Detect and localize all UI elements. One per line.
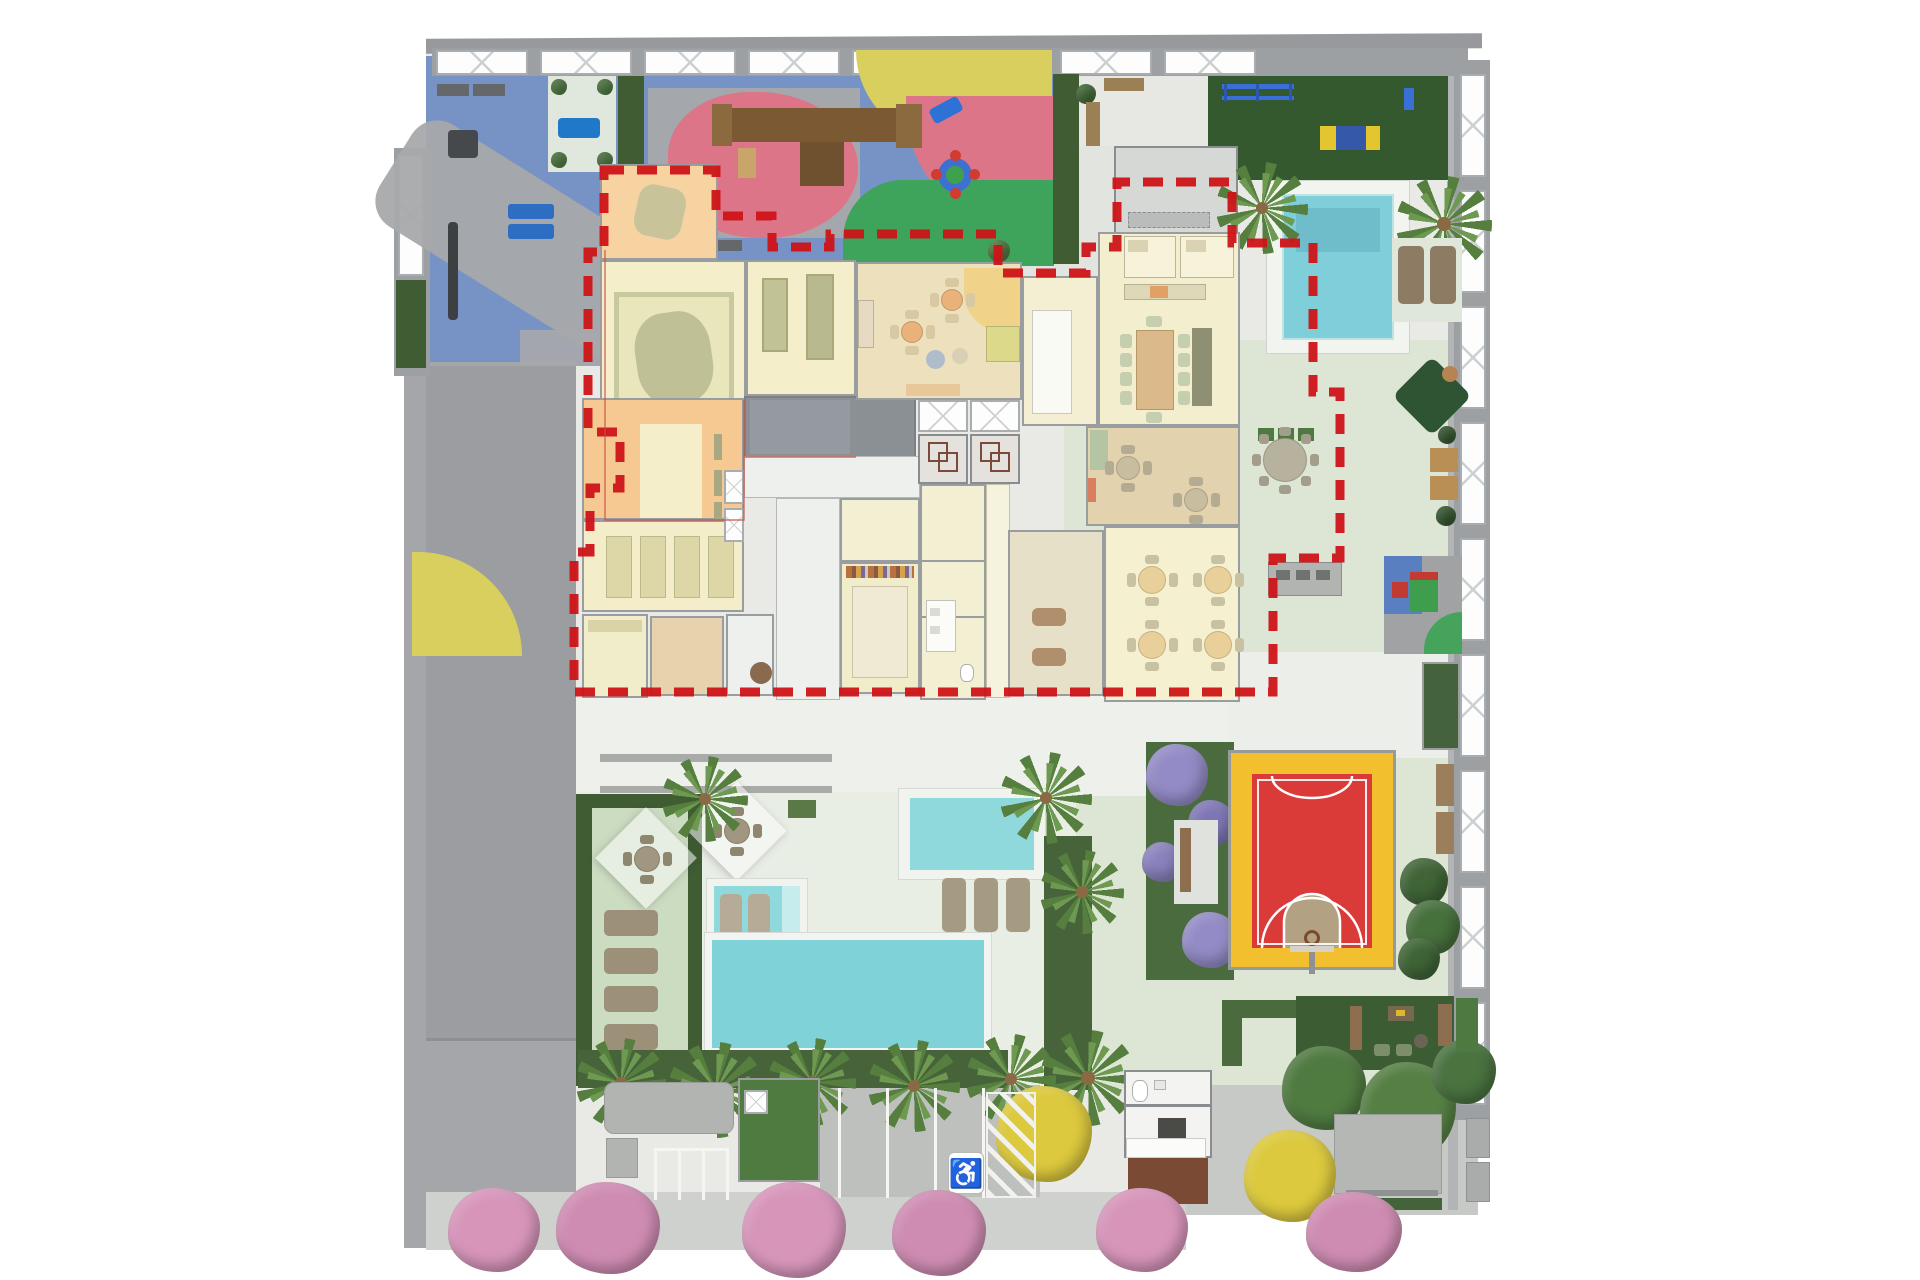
lounge-table-chair — [1189, 515, 1203, 524]
nook-vase — [1414, 1034, 1428, 1048]
nook-chair — [1396, 1044, 1412, 1056]
banquet-table-chair — [1211, 555, 1225, 564]
dining-chair — [1146, 316, 1162, 327]
beanbag — [952, 348, 968, 364]
facade-x-panel-top — [644, 50, 736, 75]
court-side-hedge — [1398, 938, 1440, 980]
garden-planter-x — [744, 1090, 768, 1114]
dining-chair — [1120, 372, 1132, 386]
outdoor-dining-table-chair — [1252, 454, 1261, 466]
facade-x-panel-top — [540, 50, 632, 75]
stair-treads — [750, 400, 850, 454]
elevator-cab — [918, 400, 968, 432]
buffet-sideboard — [1192, 328, 1212, 406]
dining-chair — [1178, 372, 1190, 386]
banquet-table — [1138, 566, 1166, 594]
garden-lounger — [604, 986, 658, 1012]
spa-lounger — [1032, 648, 1066, 666]
elevator-symbol — [938, 452, 958, 472]
play-structure-arm — [800, 142, 844, 186]
utility-pad — [604, 1082, 734, 1134]
outdoor-dining-table-chair — [1279, 427, 1291, 436]
lounge-table — [1184, 488, 1208, 512]
counter-sink — [1276, 570, 1290, 580]
spinner-center — [946, 166, 964, 184]
bookshelf — [846, 566, 914, 578]
banquet-table-chair — [1193, 573, 1202, 587]
moto-parking-line — [654, 1148, 657, 1200]
moto-parking-line — [726, 1148, 729, 1200]
left-hedge — [396, 280, 426, 368]
playroom-table-chair — [945, 278, 959, 287]
garden-table-chair — [730, 847, 744, 856]
locker-bank — [588, 620, 642, 632]
basketball-rim — [1304, 930, 1320, 946]
lobby-corridor — [776, 498, 840, 700]
lounge-table-chair — [1173, 493, 1182, 507]
bougainvillea — [742, 1182, 846, 1278]
playroom-table-chair — [905, 310, 919, 319]
sun-lounger — [1430, 246, 1456, 304]
banquet-table-chair — [1211, 662, 1225, 671]
jacaranda-tree — [1146, 744, 1208, 806]
parking-line — [934, 1088, 937, 1198]
wc-basin — [930, 626, 940, 634]
parking-line — [838, 1088, 841, 1198]
nook-bench — [1438, 1004, 1452, 1046]
lounge-sofa — [1186, 240, 1206, 252]
nook-table-accent — [1396, 1010, 1405, 1016]
walk-shrub — [1076, 84, 1096, 104]
outdoor-dining-table-chair — [1310, 454, 1319, 466]
banquet-table-chair — [1169, 573, 1178, 587]
side-table — [1442, 366, 1458, 382]
nook-bench — [1350, 1006, 1362, 1050]
spa-pool-step — [1296, 208, 1380, 252]
dining-chair — [1120, 334, 1132, 348]
garden-lounger — [604, 910, 658, 936]
banquet-table-chair — [1145, 597, 1159, 606]
moto-parking-top — [654, 1148, 729, 1151]
outdoor-dining-table-chair — [1301, 434, 1311, 444]
facade-x-panel-right — [1460, 422, 1486, 525]
nook-planter — [1456, 998, 1478, 1052]
dining-chair — [1146, 412, 1162, 423]
lounge-sofa — [1128, 240, 1148, 252]
lounge-table — [1116, 456, 1140, 480]
pilates-mat — [606, 536, 632, 598]
sun-lounger — [942, 878, 966, 932]
wood-crate — [1430, 476, 1458, 500]
banquet-table-chair — [1211, 620, 1225, 629]
garden-table-chair — [640, 835, 654, 844]
banquet-table-chair — [1211, 597, 1225, 606]
shrub — [988, 240, 1010, 262]
court-bench — [1436, 764, 1454, 806]
planter-box — [788, 800, 816, 818]
pass-counter-tray — [1150, 286, 1168, 298]
banquet-table — [1204, 566, 1232, 594]
treadmill-icon — [762, 278, 788, 352]
facade-x-panel-right — [1460, 770, 1486, 873]
driveway-joint — [426, 1038, 576, 1041]
pullup-post — [1289, 84, 1292, 101]
spinner-petal — [950, 150, 961, 161]
palm-tree — [1040, 850, 1124, 934]
walk-bench — [1104, 78, 1144, 91]
shrub — [1438, 426, 1456, 444]
toilet-icon — [960, 664, 974, 682]
facade-x-panel-top — [1164, 50, 1256, 75]
dining-chair — [1120, 353, 1132, 367]
patio-shrub — [551, 152, 567, 168]
dining-chair — [1178, 334, 1190, 348]
banquet-table-chair — [1193, 638, 1202, 652]
fireplace-lounge — [1086, 426, 1240, 526]
spinner-petal — [969, 169, 980, 180]
park-bench — [473, 84, 505, 96]
dumbbell-icon — [714, 470, 722, 496]
facade-x-panel-right — [1460, 538, 1486, 641]
facade-x-panel-right — [1460, 654, 1486, 757]
pullup-post — [1224, 84, 1227, 101]
fitness-bar — [448, 222, 458, 320]
main-pool-water — [712, 940, 984, 1048]
patio-shrub — [597, 79, 613, 95]
sun-lounger — [974, 878, 998, 932]
lounge-table-chair — [1143, 461, 1152, 475]
outdoor-dining-table — [1263, 438, 1307, 482]
gym-mat-blue — [1336, 126, 1366, 150]
counter-sink — [1296, 570, 1310, 580]
outdoor-dining-table-chair — [1259, 434, 1269, 444]
nook-chair — [1374, 1044, 1390, 1056]
outdoor-dining-table-chair — [1279, 485, 1291, 494]
beanbag — [926, 350, 945, 369]
elevator-symbol — [990, 452, 1010, 472]
service-rooms — [920, 484, 986, 700]
gym-mat-yellow — [1320, 126, 1336, 150]
playroom-table-chair — [890, 325, 899, 339]
reception-desk — [1128, 212, 1210, 228]
dining-chair — [1178, 353, 1190, 367]
park-bench — [437, 84, 469, 96]
garden-table-chair — [640, 875, 654, 884]
dining-chair — [1178, 391, 1190, 405]
banquet-table-chair — [1145, 620, 1159, 629]
sauna-room — [650, 616, 724, 696]
playroom-bench — [906, 384, 960, 396]
banquet-table-chair — [1127, 638, 1136, 652]
pool-wc-divider — [1124, 1104, 1212, 1107]
picnic-table-blue — [558, 118, 600, 138]
moto-parking-line — [678, 1148, 681, 1200]
playroom-table-chair — [905, 346, 919, 355]
banquet-room — [1104, 526, 1240, 702]
court-side-hedge — [1400, 858, 1448, 906]
palm-tree — [662, 756, 748, 842]
court-bench — [1436, 812, 1454, 854]
facade-x-panel-right — [1460, 886, 1486, 989]
wc-basin — [930, 608, 940, 616]
playroom-table-chair — [966, 293, 975, 307]
pilates-mat — [708, 536, 734, 598]
outdoor-dining-table-chair — [1259, 476, 1269, 486]
duct-shaft — [724, 508, 744, 542]
garden-bench — [1180, 828, 1191, 892]
lounge-table-chair — [1189, 477, 1203, 486]
ball-pit — [986, 326, 1020, 362]
parking-hatch-zone — [986, 1092, 1036, 1198]
pilates-mat — [640, 536, 666, 598]
pool-steps — [782, 886, 800, 938]
weight-rack-icon — [806, 274, 834, 360]
play-block-green — [1410, 580, 1438, 612]
banquet-table-chair — [1145, 555, 1159, 564]
exercise-mat-blue — [508, 224, 554, 239]
banquet-table-chair — [1169, 638, 1178, 652]
playroom-table-chair — [945, 314, 959, 323]
accessible-parking-badge: ♿ — [948, 1152, 984, 1194]
dumbbell-icon — [714, 434, 722, 460]
plaza-pad — [1334, 1114, 1442, 1194]
service-corridor — [986, 484, 1010, 698]
bougainvillea — [1096, 1188, 1188, 1272]
walk-bench — [1086, 102, 1100, 146]
dining-long-table — [1136, 330, 1174, 410]
games-table — [1032, 310, 1072, 414]
toilet-icon — [1132, 1080, 1148, 1102]
pantry-room — [840, 498, 920, 562]
playroom-table-chair — [930, 293, 939, 307]
banquet-table — [1204, 631, 1232, 659]
outdoor-dining-table-chair — [1301, 476, 1311, 486]
playroom-kitchenette — [858, 300, 874, 348]
shrub — [1436, 506, 1456, 526]
facade-x-panel-top — [436, 50, 528, 75]
spa-side-table — [750, 662, 772, 684]
play-block-red — [1392, 582, 1408, 598]
banquet-table-chair — [1235, 573, 1244, 587]
fitness-mat — [448, 130, 478, 158]
bougainvillea — [448, 1188, 540, 1272]
basketball-pole — [1309, 952, 1315, 974]
pullup-post — [1256, 84, 1259, 101]
wood-crate — [1430, 448, 1458, 472]
lawn-equipment — [1404, 88, 1414, 110]
se-garden-hedge — [1222, 1000, 1242, 1066]
banquet-table-chair — [1145, 662, 1159, 671]
service-divider — [920, 560, 986, 562]
garden-table — [634, 846, 660, 872]
moto-parking-line — [702, 1148, 705, 1200]
walk-hedge-strip — [1053, 74, 1079, 264]
sun-lounger — [1398, 246, 1424, 304]
palm-tree — [868, 1040, 960, 1132]
patio-hedge — [618, 76, 644, 172]
site-floor-plan: ♿ — [0, 0, 1920, 1280]
banquet-table-chair — [1235, 638, 1244, 652]
wc-canopy — [1126, 1138, 1206, 1158]
garden-table-chair — [753, 824, 762, 838]
exercise-mat-blue — [508, 204, 554, 219]
patio-shrub — [551, 79, 567, 95]
spa-lounger — [1032, 608, 1066, 626]
garden-lounger — [604, 948, 658, 974]
reading-table — [852, 586, 908, 678]
spinner-petal — [950, 188, 961, 199]
play-structure-ladder — [738, 148, 756, 178]
stretch-mat-striped — [640, 424, 702, 518]
court-planter — [1422, 662, 1460, 750]
shower-room — [726, 614, 774, 696]
utility-pad — [606, 1138, 638, 1178]
banquet-table-chair — [1127, 573, 1136, 587]
playroom-table — [901, 321, 923, 343]
playroom-table — [941, 289, 963, 311]
gym-mat-yellow — [1366, 126, 1380, 150]
garden-table-chair — [663, 852, 672, 866]
lounge-table-chair — [1121, 483, 1135, 492]
edge-planter — [1466, 1118, 1490, 1158]
play-structure-end — [896, 104, 922, 148]
facade-x-panel-top — [1060, 50, 1152, 75]
pilates-mat — [674, 536, 700, 598]
lounge-table-chair — [1211, 493, 1220, 507]
bougainvillea — [556, 1182, 660, 1274]
duct-shaft — [724, 470, 744, 504]
play-structure-end — [712, 104, 732, 146]
lounge-table-chair — [1121, 445, 1135, 454]
spinner-petal — [931, 169, 942, 180]
bougainvillea — [892, 1190, 986, 1276]
sun-lounger — [1006, 878, 1030, 932]
play-structure-beam — [726, 108, 912, 142]
garden-table-chair — [623, 852, 632, 866]
driveway-dark — [426, 366, 576, 1038]
lobby-upper — [744, 456, 920, 498]
play-block-green-top — [1410, 572, 1438, 580]
palm-tree — [1000, 752, 1092, 844]
counter-sink — [1316, 570, 1330, 580]
lounge-table-chair — [1105, 461, 1114, 475]
wc-desk — [1158, 1118, 1186, 1138]
facade-x-panel-top — [748, 50, 840, 75]
dining-chair — [1120, 391, 1132, 405]
banquet-table — [1138, 631, 1166, 659]
playground-green-patch — [843, 180, 1054, 266]
sink-icon — [1154, 1080, 1166, 1090]
bougainvillea — [1306, 1192, 1402, 1272]
facade-x-panel-right — [1460, 74, 1486, 177]
parking-line — [886, 1088, 889, 1198]
fireplace-accent — [1088, 478, 1096, 502]
elevator-cab — [970, 400, 1020, 432]
playroom-table-chair — [926, 325, 935, 339]
edge-planter — [1466, 1162, 1490, 1202]
